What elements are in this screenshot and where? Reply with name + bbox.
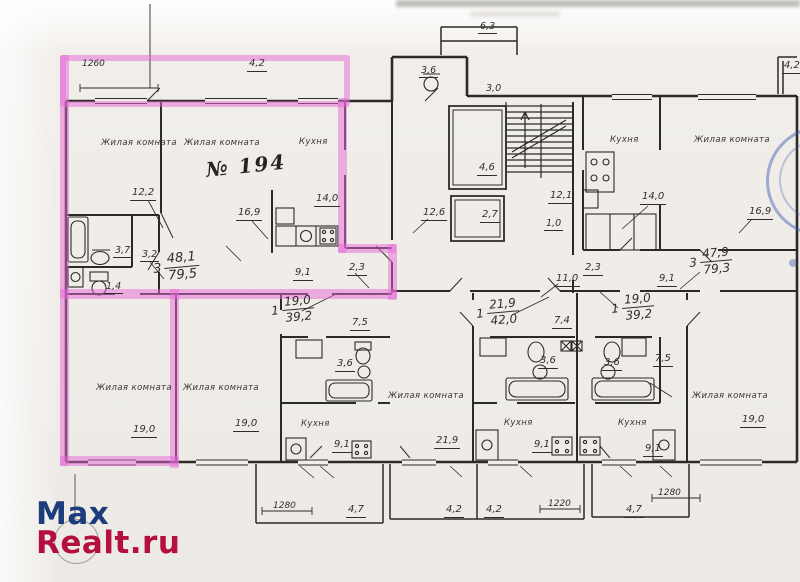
- dimension-label: 3,7: [113, 246, 132, 258]
- dimension-label: 6,3: [478, 22, 497, 34]
- dimension-label: 9,1: [293, 268, 313, 281]
- dimension-label: 2,3: [583, 263, 603, 276]
- room-label: Жилая комната: [388, 392, 464, 401]
- plan-labels-layer: 12604,2Жилая комнатаЖилая комнатаКухня№ …: [0, 0, 800, 582]
- dimension-label: 1280: [273, 502, 296, 511]
- dimension-label: 4,2: [484, 505, 504, 518]
- room-label: Кухня: [301, 420, 330, 429]
- room-label: Кухня: [504, 419, 533, 428]
- dimension-label: 12,6: [421, 208, 447, 221]
- apartment-number: № 194: [205, 152, 287, 180]
- dimension-label: 3,0: [484, 84, 503, 96]
- dimension-label: 11,0: [554, 274, 580, 287]
- stamp-mark: [789, 259, 797, 267]
- watermark-line2: Realt.ru: [36, 529, 180, 558]
- dimension-label: 7,4: [552, 316, 572, 329]
- dimension-label: 16,9: [236, 208, 262, 221]
- dimension-label: 9,1: [332, 440, 352, 453]
- dimension-label: 4,6: [477, 163, 497, 176]
- dimension-label: 3,6: [538, 356, 558, 369]
- dimension-label: 7,5: [653, 354, 673, 367]
- room-label: Жилая комната: [101, 139, 177, 148]
- dimension-label: 4,2: [782, 61, 800, 74]
- apartment-area-label: 121,942,0: [475, 296, 521, 328]
- dimension-label: 9,1: [657, 274, 677, 287]
- room-label: Кухня: [610, 136, 639, 145]
- dimension-label: 2,7: [480, 210, 500, 223]
- dimension-label: 4,7: [346, 505, 366, 518]
- dimension-label: 14,0: [314, 194, 340, 207]
- dimension-label: 12,2: [130, 188, 156, 201]
- dimension-label: 1,4: [104, 282, 123, 294]
- room-label: Кухня: [299, 138, 328, 147]
- dimension-label: 3,6: [602, 358, 622, 371]
- room-label: Жилая комната: [184, 139, 260, 148]
- dimension-label: 3,6: [335, 359, 355, 372]
- dimension-label: 4,7: [624, 505, 644, 518]
- watermark-logo: Max Realt.ru: [36, 500, 180, 559]
- dimension-label: 21,9: [434, 436, 460, 449]
- apartment-area-label: 348,179,5: [152, 250, 201, 284]
- room-label: Кухня: [618, 419, 647, 428]
- dimension-label: 7,5: [350, 318, 370, 331]
- dimension-label: 9,1: [643, 444, 663, 457]
- room-label: Жилая комната: [692, 392, 768, 401]
- dimension-label: 4,2: [444, 505, 464, 518]
- dimension-label: 19,0: [233, 419, 259, 432]
- dimension-label: 16,9: [747, 207, 773, 220]
- dimension-label: 9,1: [532, 440, 552, 453]
- dimension-label: 1220: [548, 500, 571, 509]
- dimension-label: 3,6: [419, 66, 438, 78]
- room-label: Жилая комната: [96, 384, 172, 393]
- dimension-label: 12,1: [548, 191, 574, 204]
- dimension-label: 19,0: [131, 425, 157, 438]
- dimension-label: 4,2: [247, 59, 267, 72]
- dimension-label: 1280: [658, 489, 681, 498]
- apartment-area-label: 347,979,3: [688, 245, 734, 277]
- room-label: Жилая комната: [183, 384, 259, 393]
- dimension-label: 1260: [82, 60, 105, 69]
- room-label: Жилая комната: [694, 136, 770, 145]
- dimension-label: 1,0: [544, 219, 563, 231]
- floor-plan-scan: 12604,2Жилая комнатаЖилая комнатаКухня№ …: [0, 0, 800, 582]
- apartment-area-label: 119,039,2: [610, 291, 656, 323]
- dimension-label: 2,3: [347, 263, 367, 276]
- dimension-label: 19,0: [740, 415, 766, 428]
- apartment-area-label: 119,039,2: [270, 293, 316, 325]
- dimension-label: 14,0: [640, 192, 666, 205]
